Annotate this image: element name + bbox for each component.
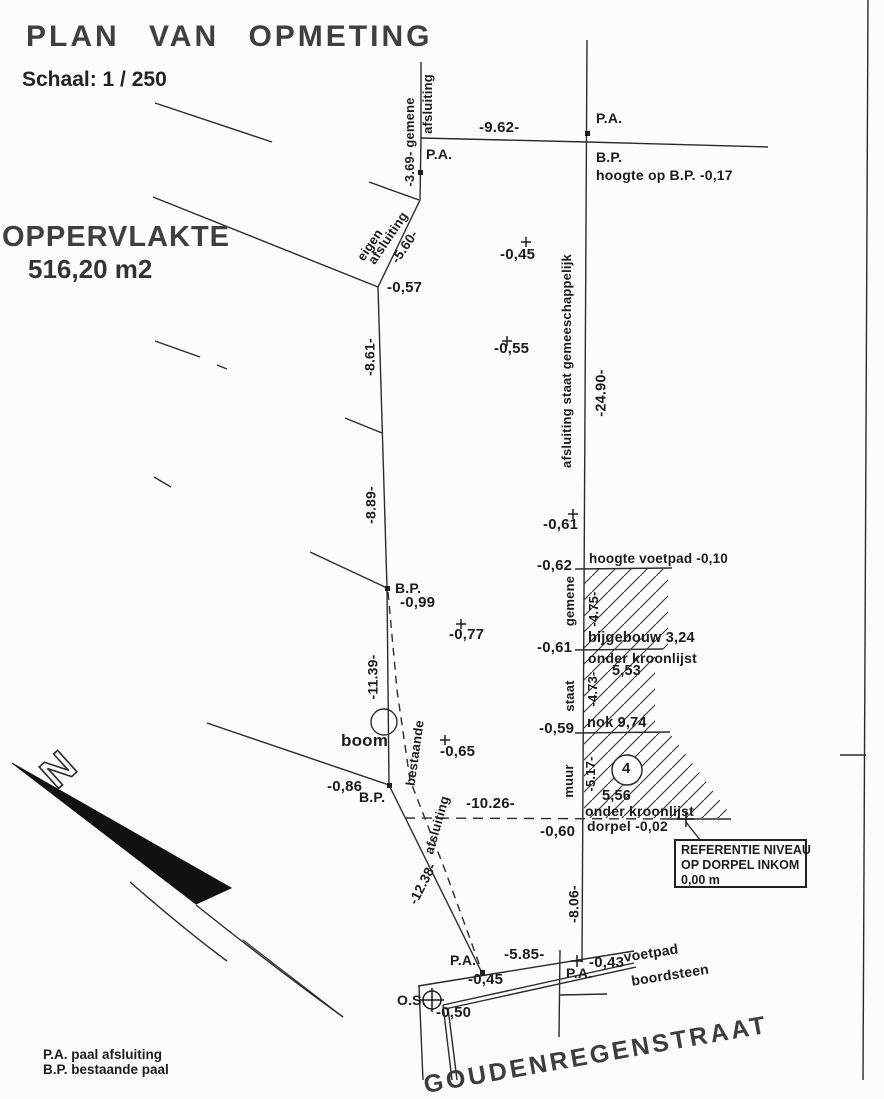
- onder-kroonlijst-1: onder kroonlijst: [588, 651, 697, 666]
- legend-pa: P.A. paal afsluiting: [43, 1047, 169, 1062]
- scale-label: Schaal: 1 / 250: [22, 68, 167, 92]
- hoogte-op-bp: hoogte op B.P. -0,17: [596, 168, 733, 183]
- building-number: 4: [622, 761, 631, 777]
- dim-4-73: -4.73-: [586, 671, 600, 706]
- right-border-line: [863, 0, 868, 1080]
- reference-line-2: OP DORPEL INKOM: [681, 858, 805, 873]
- dim-11-39: -11.39-: [366, 655, 381, 700]
- north-letter: N: [31, 742, 85, 797]
- level-099: -0,99: [400, 595, 435, 611]
- bp-label-low: B.P.: [359, 790, 385, 805]
- bijgebouw: bijgebouw 3,24: [588, 631, 695, 646]
- legend: P.A. paal afsluiting B.P. bestaande paal: [43, 1047, 169, 1077]
- bestaande-afsluiting-line: [388, 592, 481, 969]
- level-062: -0,62: [537, 558, 572, 574]
- level-043: -0,43: [589, 955, 624, 971]
- dim-24-90: -24.90-: [594, 369, 609, 416]
- reference-line-1: REFERENTIE NIVEAU: [681, 843, 805, 858]
- dim-10-26: -10.26-: [466, 796, 515, 812]
- dim-8-89: -8.89-: [364, 486, 379, 524]
- page-title: PLAN VAN OPMETING: [26, 20, 432, 54]
- pa-label-top-right: P.A.: [596, 111, 622, 126]
- level-055: -0,55: [494, 341, 529, 357]
- pa-label-top-left: P.A.: [426, 147, 452, 162]
- hoogte-voetpad: hoogte voetpad -0,10: [589, 552, 728, 566]
- level-061-low: -0,61: [537, 640, 572, 656]
- level-086: -0,86: [327, 779, 362, 795]
- dim-5-17: -5.17-: [584, 756, 598, 791]
- staat-wall: staat: [563, 680, 577, 711]
- bp-label-top: B.P.: [596, 150, 622, 165]
- area-label: OPPERVLAKTE: [2, 221, 230, 254]
- dim-9-62: -9.62-: [479, 120, 519, 136]
- value-556: 5,56: [602, 789, 631, 804]
- building-hatch-area: [584, 569, 733, 818]
- level-061-mid: -0,61: [543, 517, 578, 533]
- level-059: -0,59: [539, 721, 574, 737]
- level-060: -0,60: [540, 824, 575, 840]
- dim-5-85: -5.85-: [504, 947, 544, 963]
- boom-label: boom: [341, 732, 388, 750]
- value-553: 5,53: [612, 664, 641, 679]
- legend-bp: B.P. bestaande paal: [43, 1062, 169, 1077]
- afsluiting-top: afsluiting: [421, 74, 435, 134]
- dim-8-06: -8.06-: [567, 885, 582, 923]
- level-065: -0,65: [440, 744, 475, 760]
- gemene-wall: gemene: [563, 576, 577, 626]
- north-arrow-icon: N: [12, 742, 343, 1017]
- onder-kroonlijst-2: onder kroonlijst: [585, 804, 694, 819]
- dim-8-61: -8.61-: [363, 338, 378, 376]
- dim-4-75: -4.75-: [587, 591, 601, 626]
- reference-level-box: REFERENTIE NIVEAU OP DORPEL INKOM 0,00 m: [674, 839, 807, 888]
- os-label: O.S.: [397, 993, 426, 1008]
- level-057: -0,57: [387, 280, 422, 296]
- afsluiting-gemeeschappelijk: afsluiting staat gemeeschappelijk: [560, 254, 574, 468]
- boundary-lines: [153, 0, 868, 1080]
- reference-line-3: 0,00 m: [681, 873, 805, 888]
- area-value: 516,20 m2: [28, 254, 152, 285]
- dorpel: dorpel -0,02: [587, 819, 668, 834]
- level-077: -0,77: [449, 627, 484, 643]
- level-050: -0,50: [436, 1005, 471, 1021]
- pa-label-bottom-1: P.A.: [450, 953, 476, 968]
- level-045-top: -0,45: [500, 247, 535, 263]
- survey-drawing: N: [0, 0, 884, 1080]
- level-045-bottom: -0,45: [468, 972, 503, 988]
- nok-974: nok 9,74: [587, 716, 647, 731]
- dim-3-69-gemene: -3.69- gemene: [403, 97, 417, 186]
- muur-wall: muur: [562, 764, 576, 797]
- survey-plan-page: { "header": { "title": "PLAN VAN OPMETIN…: [0, 0, 884, 1080]
